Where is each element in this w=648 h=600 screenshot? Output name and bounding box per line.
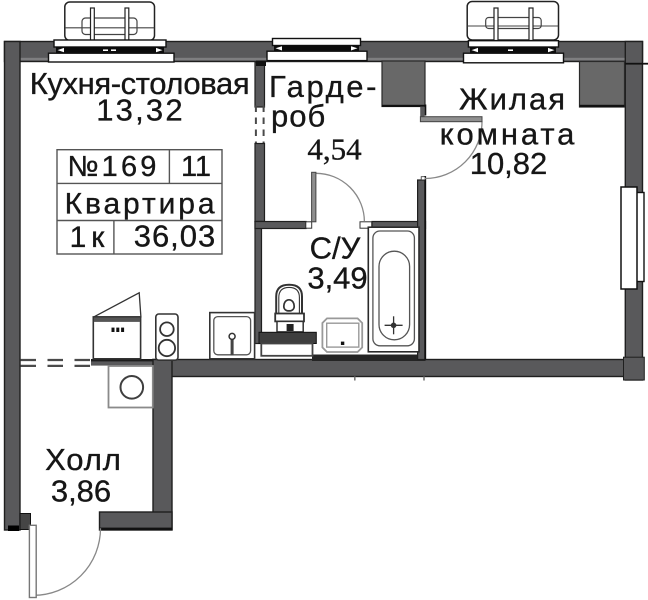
svg-text:роб: роб xyxy=(271,99,326,134)
svg-text:Жилая: Жилая xyxy=(459,81,567,116)
svg-text:Холл: Холл xyxy=(45,442,122,477)
svg-text:36,03: 36,03 xyxy=(134,219,217,254)
svg-text:1к: 1к xyxy=(70,221,110,254)
svg-text:13,32: 13,32 xyxy=(96,93,185,128)
svg-text:4,54: 4,54 xyxy=(307,132,362,167)
svg-text:№169: №169 xyxy=(67,151,159,183)
svg-text:Квартира: Квартира xyxy=(65,188,218,221)
svg-text:11: 11 xyxy=(181,151,211,183)
svg-text:3,49: 3,49 xyxy=(307,261,367,296)
svg-text:10,82: 10,82 xyxy=(470,146,548,181)
svg-text:3,86: 3,86 xyxy=(51,474,111,509)
